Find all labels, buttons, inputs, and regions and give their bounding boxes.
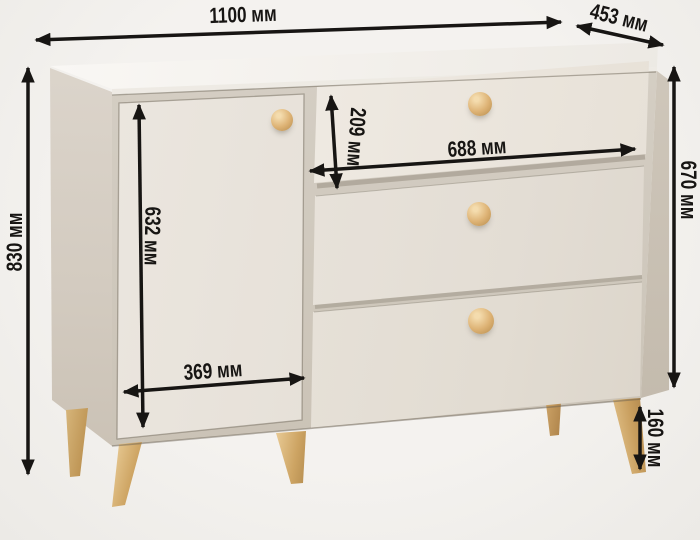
dim-label-top-drawer-height: 209 мм (343, 107, 369, 167)
dim-arrow-door-height (139, 105, 143, 427)
dim-label-leg-height: 160 мм (644, 409, 666, 468)
dim-label-height: 830 мм (4, 213, 26, 272)
dim-label-body-height: 670 мм (677, 161, 699, 220)
bottom-edge-seam (112, 399, 641, 446)
dim-label-width: 1100 мм (209, 3, 277, 27)
dimension-diagram: 1100 мм 453 мм 830 мм 670 мм 632 мм 209 … (0, 0, 700, 540)
panel-seams (112, 72, 656, 446)
door-seam (117, 94, 304, 439)
top-bevel-seam (112, 72, 656, 95)
dim-label-drawer-width: 688 мм (447, 135, 507, 161)
drawer-middle-shadow (315, 277, 642, 307)
dim-label-door-height: 632 мм (140, 206, 163, 265)
dim-arrow-width (36, 22, 561, 40)
annotation-layer (0, 0, 700, 540)
dim-label-door-width: 369 мм (183, 358, 243, 384)
drawer-3-top-seam (314, 282, 642, 312)
dimension-arrows (28, 22, 674, 474)
dim-arrow-top-drawer-height (331, 96, 337, 188)
